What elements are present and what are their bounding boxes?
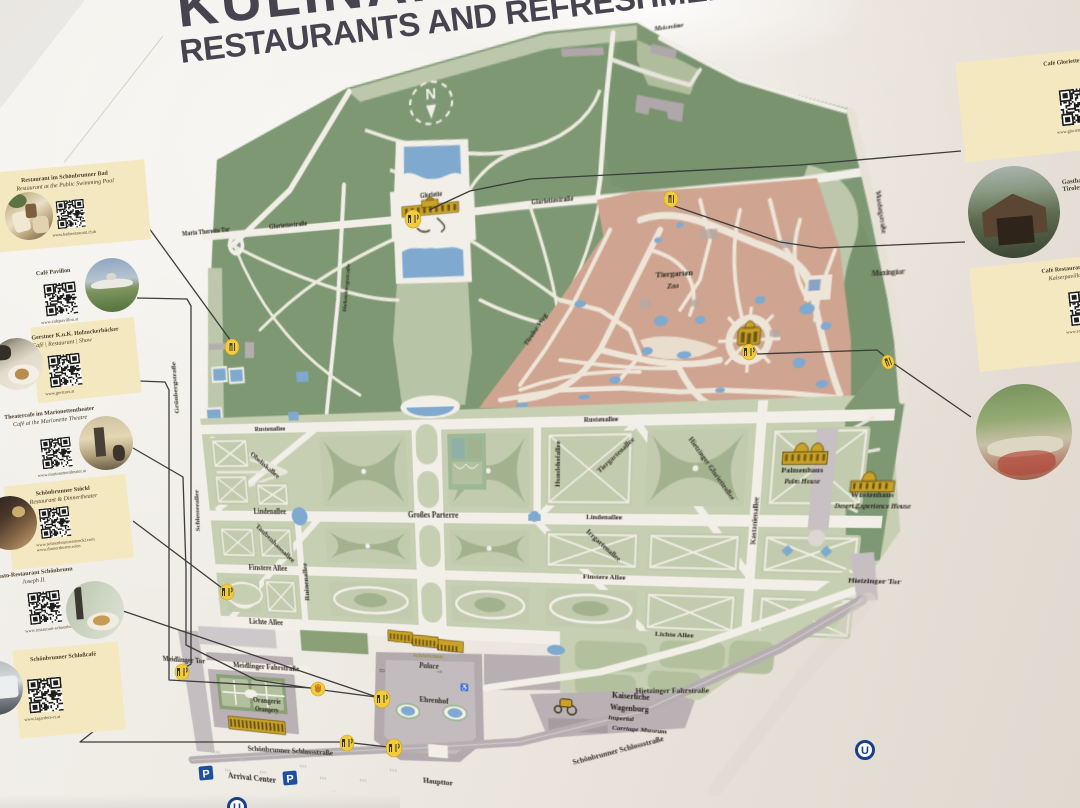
svg-text:U: U — [233, 802, 241, 808]
svg-text:U: U — [861, 745, 869, 757]
svg-text:P: P — [202, 768, 210, 781]
svg-text:P: P — [286, 773, 294, 786]
